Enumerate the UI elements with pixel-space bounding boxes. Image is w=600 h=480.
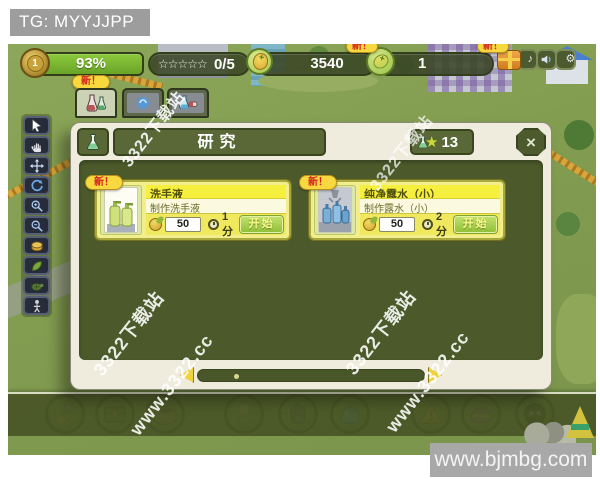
clock-icon: [208, 219, 219, 230]
card-subtitle: 制作露水（小）: [360, 199, 500, 213]
card-cost-row: 50 2分 开始: [360, 213, 500, 235]
cost-value: 50: [379, 217, 415, 232]
dialog-flask-box: [77, 128, 109, 156]
dialog-header: 研究 ★ 13 ×: [71, 123, 551, 156]
flasks-icon: [82, 93, 110, 113]
music-note-icon: ♪: [528, 53, 534, 66]
flask-pill-icon: [177, 95, 199, 111]
cursor-icon: [30, 119, 44, 133]
soap-bottles-icon: [105, 192, 137, 232]
progress-bar: 93%: [38, 52, 144, 76]
coin-icon: [149, 218, 162, 231]
new-badge: 新！: [85, 175, 123, 190]
tool-zoom-out-button[interactable]: [23, 216, 50, 235]
scroll-right-button[interactable]: [428, 367, 442, 383]
star-icon: ★: [425, 133, 438, 151]
zoom-in-icon: [30, 199, 44, 213]
edit-toolbar: [21, 114, 52, 317]
level-value: 1: [27, 55, 44, 72]
duration-value: 2分: [436, 211, 451, 239]
coins-icon: [30, 239, 44, 253]
research-count: 13: [441, 134, 458, 151]
tool-move-button[interactable]: [23, 156, 50, 175]
research-dialog: 研究 ★ 13 × 新！: [70, 122, 552, 390]
tool-rotate-button[interactable]: [23, 176, 50, 195]
bottom-bar: [8, 392, 596, 436]
promo-banner: TG: MYYJJPP: [10, 9, 150, 36]
scene-tree: [556, 212, 580, 236]
cost-value: 50: [165, 217, 201, 232]
new-badge: 新！: [299, 175, 337, 190]
tool-bug-button[interactable]: [23, 276, 50, 295]
stars-count: 0/5: [214, 56, 235, 73]
card-title: 纯净露水（小）: [360, 185, 500, 199]
dialog-title: 研究: [113, 128, 326, 156]
gift-icon[interactable]: [497, 50, 521, 70]
duration-value: 1分: [222, 211, 237, 239]
scrollbar-track[interactable]: [197, 369, 425, 382]
person-icon: [30, 299, 44, 313]
game-viewport: 1 93% 新！ ☆☆☆☆☆ 0/5 + 3540 + 1 ♪: [8, 44, 596, 455]
page: TG: MYYJJPP 1 93% 新！: [0, 0, 600, 480]
card-title: 洗手液: [146, 185, 286, 199]
stars-pill: ☆☆☆☆☆ 0/5: [148, 52, 250, 76]
add-coins-icon[interactable]: +: [246, 48, 273, 75]
card-thumbnail: [314, 185, 356, 235]
research-count-badge: ★ 13: [410, 129, 474, 155]
blue-swirl-icon: [135, 95, 151, 111]
new-badge: 新！: [346, 44, 378, 53]
scrollbar-thumb[interactable]: [234, 374, 239, 379]
tab-research[interactable]: [75, 88, 117, 118]
scroll-left-button[interactable]: [180, 367, 194, 383]
rotate-icon: [30, 179, 44, 193]
card-cost-row: 50 1分 开始: [146, 213, 286, 235]
start-button[interactable]: 开始: [240, 216, 283, 233]
hand-icon: [30, 139, 44, 153]
stars-icon: ☆☆☆☆☆: [158, 57, 207, 71]
tool-zoom-in-button[interactable]: [23, 196, 50, 215]
card-thumbnail: [100, 185, 142, 235]
music-button[interactable]: ♪: [519, 51, 536, 68]
tool-leaf-button[interactable]: [23, 256, 50, 275]
start-button[interactable]: 开始: [454, 216, 497, 233]
hud-new-badge: 新！: [72, 75, 110, 89]
scene-cone: [566, 406, 594, 438]
site-watermark: www.bjmbg.com: [430, 443, 592, 477]
scene-tree: [564, 120, 594, 150]
tab-materials[interactable]: [122, 88, 164, 118]
coin-icon: [363, 218, 376, 231]
dew-bottles-icon: [319, 188, 351, 232]
tool-money-button[interactable]: [23, 236, 50, 255]
flask-icon: [84, 132, 102, 152]
tab-potions[interactable]: [167, 88, 209, 118]
dialog-body: 新！: [79, 160, 543, 360]
dialog-footer: [71, 360, 551, 390]
speaker-icon: [540, 53, 553, 66]
sound-button[interactable]: [538, 51, 555, 68]
tool-cursor-button[interactable]: [23, 116, 50, 135]
clock-icon: [422, 219, 433, 230]
turtle-icon: [30, 279, 44, 293]
coins-value: 3540: [256, 52, 376, 76]
zoom-out-icon: [30, 219, 44, 233]
research-card: 新！: [95, 180, 291, 240]
card-subtitle: 制作洗手液: [146, 199, 286, 213]
promo-banner-text: TG: MYYJJPP: [19, 12, 134, 31]
tool-hand-button[interactable]: [23, 136, 50, 155]
scene-grass-patch: [556, 294, 596, 384]
leaf-icon: [30, 259, 44, 273]
new-badge: 新！: [477, 44, 509, 53]
close-button[interactable]: ×: [516, 128, 546, 156]
research-card: 新！: [309, 180, 505, 240]
gear-icon: ⚙: [566, 53, 576, 66]
settings-button[interactable]: ⚙: [557, 51, 574, 68]
level-medal[interactable]: 1: [20, 48, 50, 78]
move-icon: [30, 159, 44, 173]
tool-person-button[interactable]: [23, 296, 50, 315]
